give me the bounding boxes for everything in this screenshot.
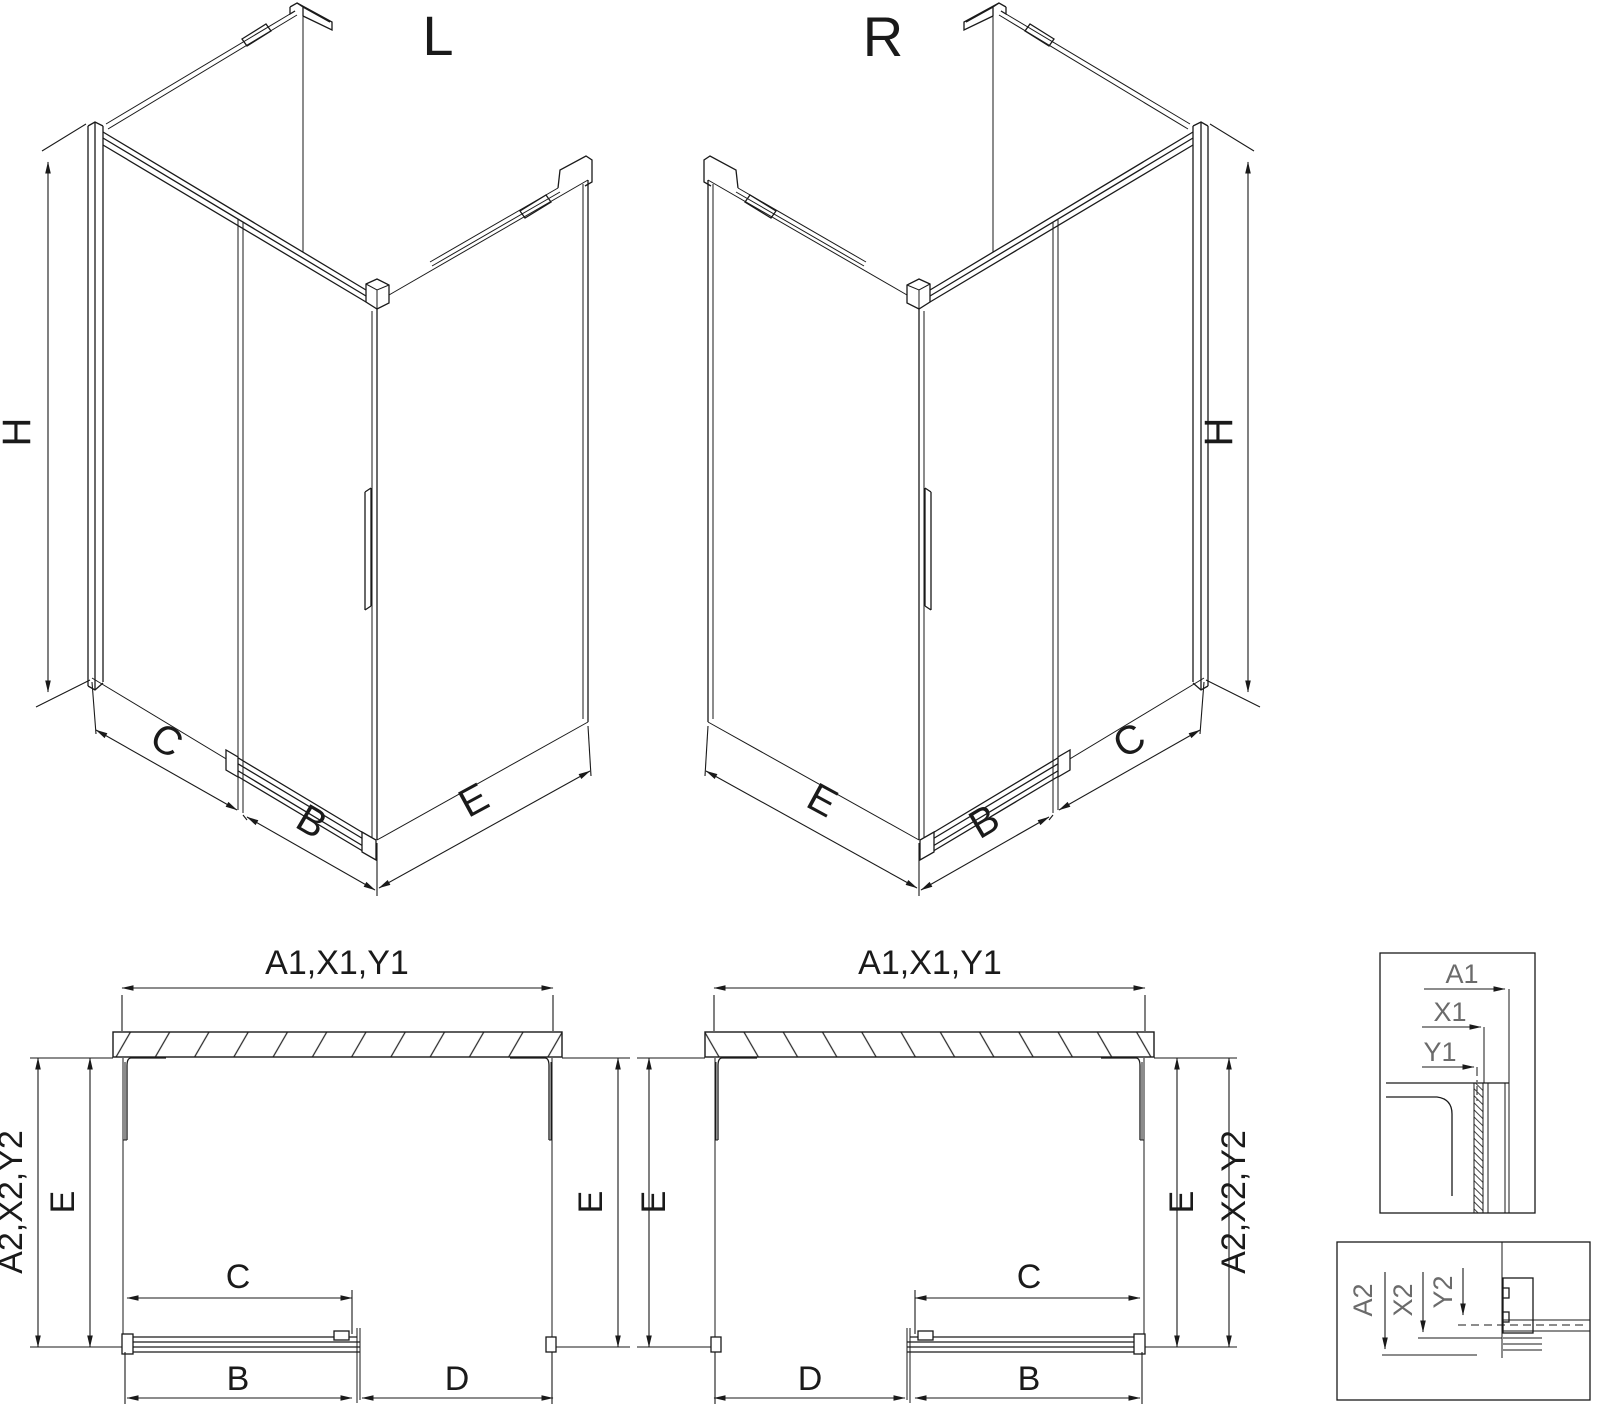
detail-bottom-rail: A2 X2 Y2 xyxy=(1337,1242,1590,1400)
detail-y1-label: Y1 xyxy=(1423,1037,1456,1067)
technical-drawing-page: L H C B E R H C B E A1,X1,Y1 A2,X2,Y2 E … xyxy=(0,0,1600,1423)
plan-right-c-label: C xyxy=(1017,1258,1042,1296)
plan-left-b-label: B xyxy=(227,1360,250,1398)
detail-y2-label: Y2 xyxy=(1428,1275,1458,1308)
plan-right-e-left-label: E xyxy=(635,1191,673,1214)
plan-left-c-label: C xyxy=(226,1258,251,1296)
iso-left-height-label: H xyxy=(0,418,39,447)
plan-left-depth-label: A2,X2,Y2 xyxy=(0,1130,30,1274)
iso-left-door-label: B xyxy=(289,796,334,847)
glass-section-hatched xyxy=(1474,1083,1483,1213)
iso-view-left: L H C B E xyxy=(0,3,592,896)
plan-view-left: A1,X1,Y1 A2,X2,Y2 E E C B D xyxy=(0,944,630,1404)
iso-left-side-label: E xyxy=(452,775,496,826)
plan-right-d-label: D xyxy=(798,1360,823,1398)
plan-right-width-label: A1,X1,Y1 xyxy=(858,944,1002,982)
plan-left-e-right-label: E xyxy=(572,1191,610,1214)
iso-left-title: L xyxy=(422,4,453,67)
plan-left-d-label: D xyxy=(445,1360,470,1398)
plan-left-e-left-label: E xyxy=(44,1191,82,1214)
plan-right-b-label: B xyxy=(1018,1360,1041,1398)
iso-right-side-label: E xyxy=(800,775,844,826)
iso-right-door-label: B xyxy=(962,796,1007,847)
iso-right-fixed-label: C xyxy=(1106,715,1153,768)
iso-right-height-label: H xyxy=(1197,418,1241,447)
plan-right-depth-label: A2,X2,Y2 xyxy=(1215,1130,1253,1274)
shower-enclosure-diagram: L H C B E R H C B E A1,X1,Y1 A2,X2,Y2 E … xyxy=(0,0,1600,1423)
detail-x2-label: X2 xyxy=(1388,1283,1418,1316)
plan-left-width-label: A1,X1,Y1 xyxy=(265,944,409,982)
detail-a1-label: A1 xyxy=(1445,959,1478,989)
detail-wall-profile: A1 X1 Y1 xyxy=(1380,953,1535,1213)
plan-right-e-right-label: E xyxy=(1163,1191,1201,1214)
iso-right-title: R xyxy=(863,5,903,68)
detail-x1-label: X1 xyxy=(1433,997,1466,1027)
iso-view-right: R H C B E xyxy=(704,3,1260,896)
plan-view-right: A1,X1,Y1 A2,X2,Y2 E E C B D xyxy=(635,944,1253,1404)
detail-a2-label: A2 xyxy=(1348,1283,1378,1316)
iso-left-fixed-label: C xyxy=(143,715,190,768)
